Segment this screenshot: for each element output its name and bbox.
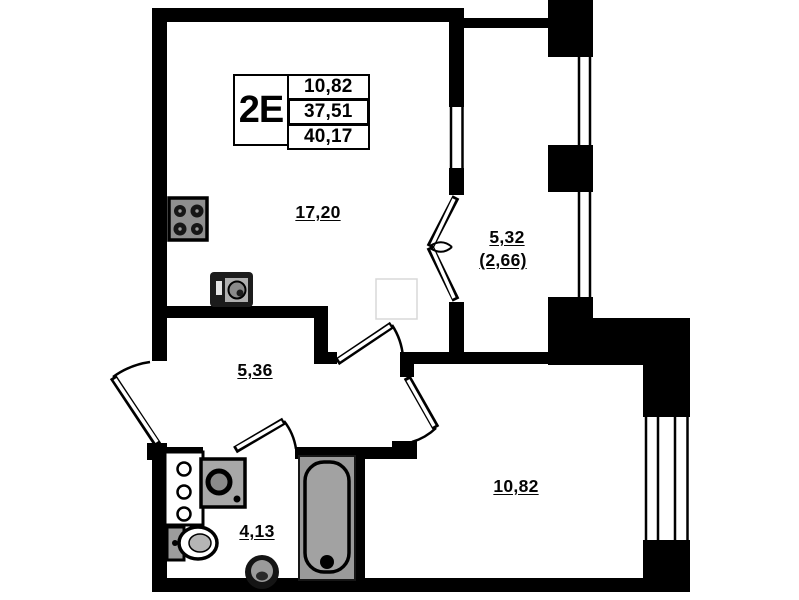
room-label-bathroom: 4,13 — [211, 521, 303, 542]
wall-balcony-right-block-top — [548, 0, 593, 57]
wall-hall-step — [314, 306, 328, 364]
bathtub-icon — [299, 456, 355, 580]
bedroom-door — [407, 377, 436, 442]
wall-balcony-top-edge — [464, 18, 548, 28]
living-room-door — [337, 325, 403, 362]
legend-total-area: 40,17 — [287, 124, 371, 150]
window-balcony-right-upper — [579, 57, 590, 145]
towel-dryer-icon — [165, 452, 203, 525]
wall-balcony-left-stub1 — [449, 168, 464, 195]
wall-hall-top-a — [328, 352, 337, 364]
room-label-bedroom: 10,82 — [470, 476, 562, 497]
washing-machine-icon — [201, 459, 245, 507]
legend-apartment-area: 37,51 — [287, 98, 371, 126]
room-label-balcony-coefficient: (2,66) — [457, 250, 549, 271]
floor-plan: 2E 10,82 37,51 40,17 17,20 5,32 (2,66) 5… — [0, 0, 799, 600]
floor-plan-drawing — [0, 0, 799, 600]
window-balcony-left — [451, 107, 463, 168]
window-balcony-right-lower — [579, 192, 590, 297]
balcony-folding-door — [430, 197, 456, 300]
room-label-living: 17,20 — [272, 202, 364, 223]
wall-kitchen-hall — [152, 306, 328, 318]
pedestal-sink-icon — [245, 555, 279, 589]
toilet-icon — [167, 527, 217, 560]
legend-living-area: 10,82 — [287, 74, 371, 100]
faint-shaft-outline — [376, 279, 417, 319]
wall-bottom — [152, 578, 690, 592]
apartment-type-label: 2E — [233, 74, 289, 146]
wall-bedroom-top-right — [593, 318, 690, 365]
wall-bedroom-right-lower — [643, 540, 690, 592]
legend-table: 2E 10,82 37,51 40,17 — [233, 74, 370, 146]
wall-bedroom-door-stub-bottom — [392, 441, 417, 459]
stove-icon — [169, 198, 207, 240]
window-bedroom — [646, 417, 688, 540]
room-label-hallway: 5,36 — [209, 360, 301, 381]
wall-balcony-left-stub2 — [449, 302, 464, 364]
wall-balcony-right-block-mid — [548, 145, 593, 192]
entrance-door — [113, 362, 158, 445]
room-label-balcony: 5,32 — [461, 227, 553, 248]
kitchen-sink-icon — [210, 272, 253, 307]
legend-area-rows: 10,82 37,51 40,17 — [287, 74, 371, 146]
bathroom-door — [235, 421, 296, 450]
wall-top — [152, 8, 464, 22]
wall-balcony-left-top — [449, 8, 464, 107]
wall-bedroom-right-upper — [643, 365, 690, 417]
wall-balcony-right-block-bottom — [548, 297, 593, 365]
